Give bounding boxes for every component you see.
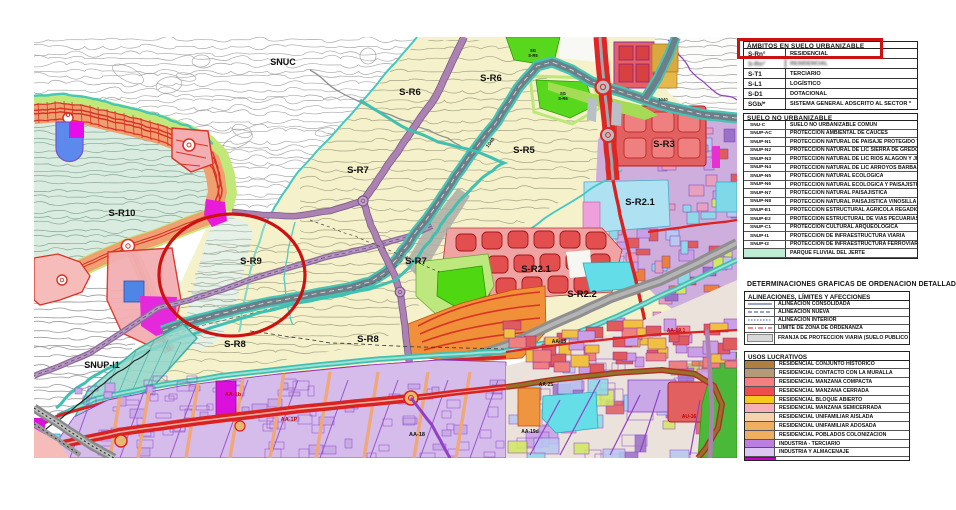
svg-text:AU-16: AU-16 [682,414,697,420]
svg-text:S-R9: S-R9 [240,256,262,267]
svg-text:AA-1b: AA-1b [225,392,242,398]
svg-text:S-R5: S-R5 [513,145,535,156]
svg-text:S-R7: S-R7 [405,256,427,267]
svg-text:S-R2.2: S-R2.2 [567,289,597,300]
svg-text:S-R3: S-R3 [653,139,675,150]
svg-text:S-R7: S-R7 [347,165,369,176]
svg-text:S-R5: S-R5 [528,53,538,58]
svg-text:S-R8: S-R8 [224,339,246,350]
svg-text:AA-19.1: AA-19.1 [667,328,686,334]
svg-text:1040: 1040 [658,97,668,102]
svg-text:AA-19d: AA-19d [521,429,539,435]
svg-text:AA-18: AA-18 [409,432,425,438]
svg-text:AA-15: AA-15 [552,339,567,345]
svg-text:S-R6: S-R6 [558,96,568,101]
svg-text:SNUP-I1: SNUP-I1 [84,360,120,370]
svg-text:S-R6: S-R6 [399,87,421,98]
svg-text:AA-25: AA-25 [539,382,554,388]
svg-text:S-R2.1: S-R2.1 [625,197,655,208]
svg-text:SNUC: SNUC [270,57,296,67]
svg-text:S-R10: S-R10 [109,208,136,219]
svg-text:S-R2.1: S-R2.1 [521,264,551,275]
svg-text:AA-1P: AA-1P [281,417,298,423]
svg-text:S-R6: S-R6 [480,73,502,84]
svg-text:S-R8: S-R8 [357,334,379,345]
